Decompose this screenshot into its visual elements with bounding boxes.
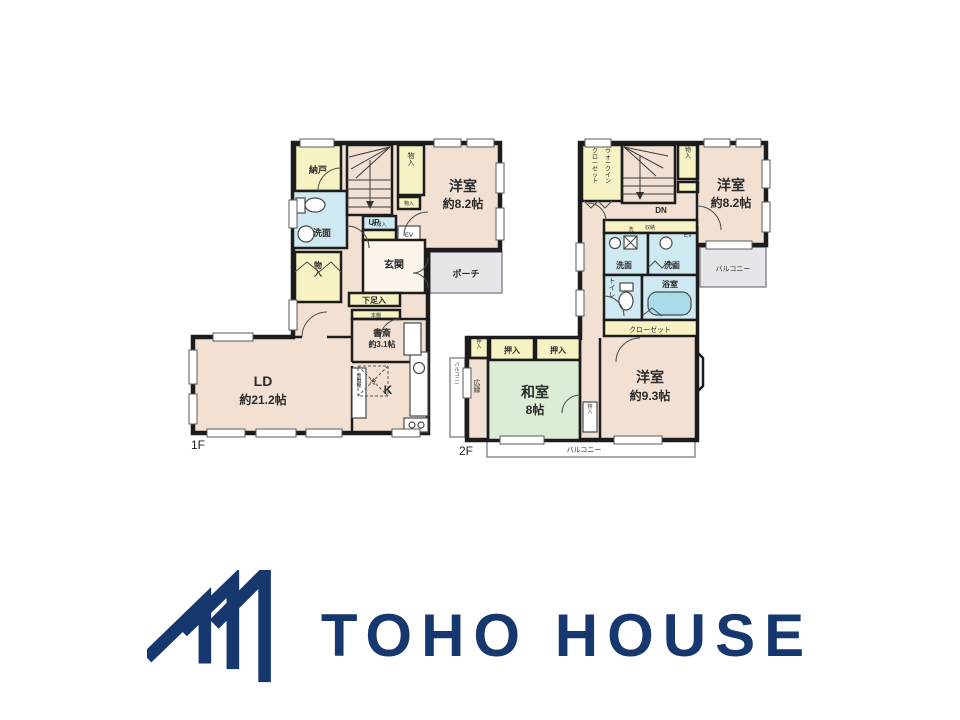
kitchen-sink [414, 363, 425, 374]
label-getabako: 下足入 [362, 296, 386, 305]
label-bath: 浴室 [662, 279, 678, 289]
label-wic-left: クローゼット [592, 148, 598, 185]
label-yoshitsu-1f-name: 洋室 [449, 178, 477, 194]
label-balcony-right: バルコニー [716, 265, 751, 273]
label-yoshitsu2-size: 約9.3帖 [630, 388, 671, 403]
kitchen-counter [410, 352, 428, 416]
label-ld-name: LD [254, 373, 273, 389]
toilet-bowl-1f [305, 198, 325, 212]
label-stairs-dn: DN [655, 206, 667, 215]
label-oshiire-b: 押入 [550, 345, 566, 355]
washbasin-left [610, 238, 621, 249]
label-genkan: 玄関 [384, 258, 404, 271]
label-cupboard: 食器棚 [356, 372, 361, 389]
washbasin-1f [298, 226, 314, 242]
label-oshiire-small: 押入 [476, 338, 481, 350]
label-closet-2f: クローゼット [629, 325, 671, 334]
room-wic [582, 145, 622, 201]
study-desk [404, 323, 421, 355]
label-senmen-right: 洗面 [664, 260, 680, 270]
brand-name: TOHO HOUSE [321, 601, 813, 670]
label-ld-size: 約21.2帖 [239, 392, 286, 407]
floorplan-canvas: 納戸 洗面 物入 UP 物入 洋服入 物入 EV 洋室 約8.2帖 玄関 ポーチ… [0, 0, 960, 560]
label-balcony-bottom: バルコニー [567, 446, 602, 454]
label-senmen-left: 洗面 [616, 260, 632, 270]
label-floor-1: 1F [191, 438, 205, 452]
label-senmen-1f: 洗面 [313, 227, 331, 238]
label-balcony-left: バルコニー [454, 362, 459, 388]
label-kitchen: K [384, 383, 393, 397]
label-washitsu-name: 和室 [521, 384, 549, 400]
small-closet-strip [363, 230, 396, 240]
label-hiroen: 広縁 [474, 378, 481, 394]
label-washitsu-size: 8帖 [526, 402, 545, 417]
label-monoire-mid: 物入 [587, 403, 592, 415]
label-oshiire-a: 押入 [504, 345, 520, 355]
label-yoshitsu-1f-size: 約8.2帖 [443, 196, 484, 211]
label-coat-closet: 洋服入 [371, 221, 386, 228]
label-floor-2: 2F [459, 444, 473, 458]
label-shoe-strip: 物入 [404, 200, 414, 207]
small-strip-2f [678, 182, 698, 192]
label-yoshitsu1-size: 約8.2帖 [711, 195, 752, 210]
label-fridge: 冷 [370, 377, 377, 386]
label-shosai-name: 書斎 [373, 327, 391, 338]
label-porch: ポーチ [452, 268, 479, 279]
label-wic-right: ウォークイン [605, 147, 611, 185]
toilet-tank-2f [620, 283, 633, 291]
label-toilet: トイレ [609, 278, 616, 299]
label-shosai-size: 約3.1帖 [368, 339, 395, 349]
toilet-bowl-2f [619, 292, 633, 310]
bathtub [648, 292, 691, 315]
label-yoshitsu2-name: 洋室 [636, 369, 664, 385]
brand-footer: TOHO HOUSE [0, 560, 960, 710]
label-shuno: 収納 [645, 224, 655, 231]
label-ev-1f: EV [405, 233, 413, 239]
label-monoire-left: 物入 [313, 260, 322, 278]
washbasin-right [660, 237, 672, 249]
label-nando: 納戸 [309, 164, 327, 175]
floorplan-page: 納戸 洗面 物入 UP 物入 洋服入 物入 EV 洋室 約8.2帖 玄関 ポーチ… [0, 0, 960, 720]
toho-house-logo-icon [147, 570, 287, 700]
room-washitsu [488, 360, 580, 440]
label-ev-2f: EV [684, 233, 692, 239]
label-monoire-2f: 物入 [685, 146, 691, 160]
label-monoire-top: 物入 [408, 151, 415, 167]
label-yoshitsu1-name: 洋室 [717, 177, 745, 193]
label-washer: 洗 [628, 226, 633, 233]
label-bookshelf: 本棚 [371, 312, 381, 319]
